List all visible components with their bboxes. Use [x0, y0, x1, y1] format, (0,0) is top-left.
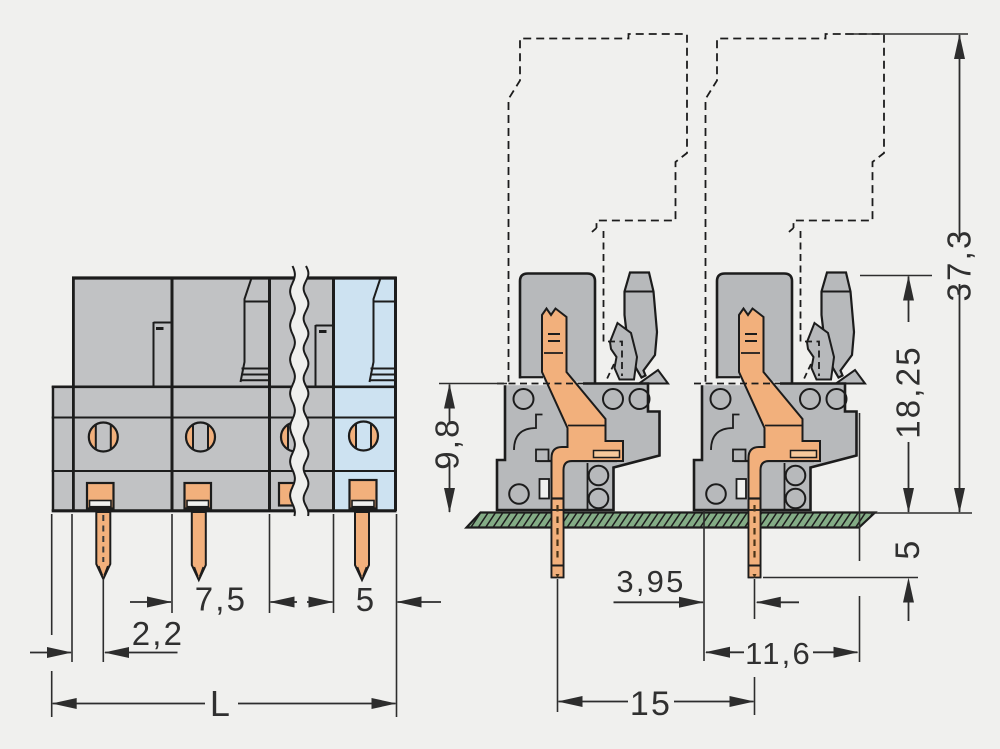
svg-text:5: 5 [356, 581, 377, 618]
svg-text:5: 5 [889, 538, 927, 559]
svg-text:18,25: 18,25 [890, 345, 927, 439]
svg-text:9,8: 9,8 [429, 417, 466, 469]
svg-text:L: L [210, 683, 232, 724]
svg-text:11,6: 11,6 [745, 636, 812, 671]
svg-text:3,95: 3,95 [616, 564, 685, 599]
svg-text:2,2: 2,2 [132, 615, 184, 652]
svg-text:7,5: 7,5 [195, 581, 247, 618]
svg-text:15: 15 [630, 685, 672, 723]
